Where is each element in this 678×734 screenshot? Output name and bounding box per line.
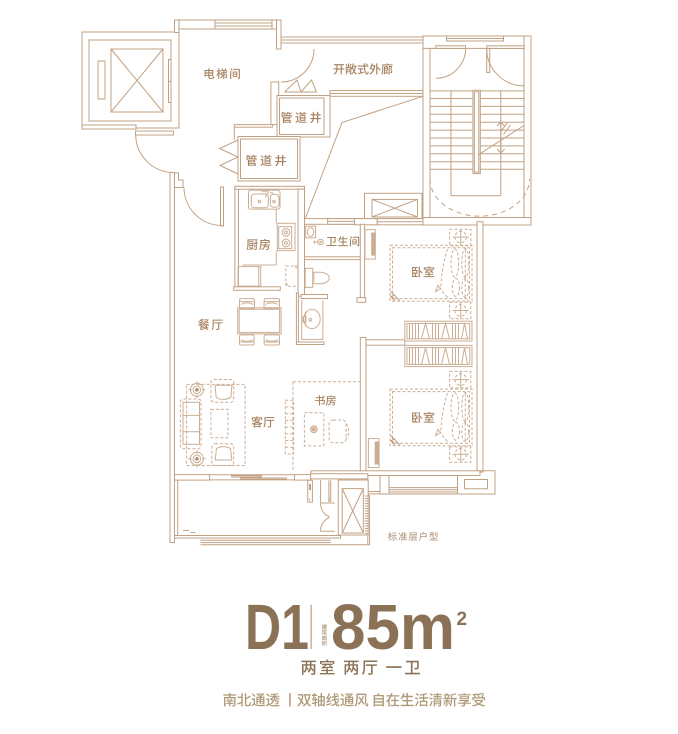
svg-text:D1: D1 bbox=[245, 591, 309, 663]
svg-text:2: 2 bbox=[457, 609, 468, 630]
svg-text:85m: 85m bbox=[331, 591, 455, 663]
